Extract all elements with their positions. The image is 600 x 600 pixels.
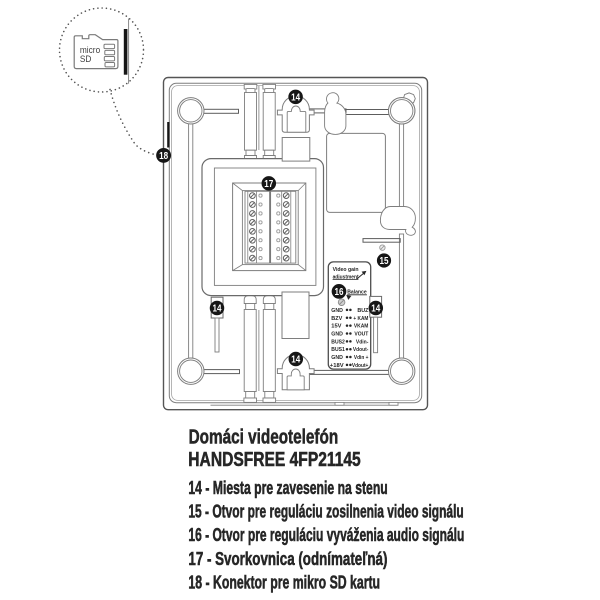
- svg-text:GND: GND: [331, 355, 343, 361]
- svg-text:BUS2: BUS2: [331, 339, 345, 345]
- svg-text:14: 14: [291, 92, 300, 103]
- svg-text:15: 15: [379, 255, 388, 266]
- svg-text:BUZ: BUZ: [357, 308, 369, 314]
- svg-text:BZV: BZV: [331, 316, 342, 322]
- svg-text:14: 14: [371, 303, 380, 314]
- svg-text:14: 14: [291, 354, 300, 365]
- svg-text:18: 18: [159, 150, 168, 161]
- svg-text:Video gain: Video gain: [333, 267, 359, 273]
- svg-text:Vdin-: Vdin-: [356, 339, 369, 345]
- svg-text:15V: 15V: [331, 324, 341, 330]
- svg-text:VOUT: VOUT: [354, 331, 369, 337]
- svg-text:14: 14: [212, 303, 221, 314]
- svg-text:15 - Otvor pre reguláciu zosil: 15 - Otvor pre reguláciu zosilnenia vide…: [188, 502, 463, 522]
- svg-text:BUS1: BUS1: [331, 347, 345, 353]
- svg-text:16 - Otvor pre reguláciu vyváž: 16 - Otvor pre reguláciu vyváženia audio…: [188, 526, 464, 546]
- svg-text:17 - Svorkovnica (odnímateľná): 17 - Svorkovnica (odnímateľná): [188, 550, 387, 569]
- svg-text:+18V: +18V: [330, 363, 344, 369]
- svg-text:VKAM: VKAM: [354, 324, 369, 330]
- svg-text:17: 17: [264, 178, 273, 189]
- svg-text:HANDSFREE 4FP21145: HANDSFREE 4FP21145: [188, 448, 360, 471]
- svg-text:Vdout-: Vdout-: [353, 347, 369, 353]
- svg-text:Vdin +: Vdin +: [354, 355, 369, 361]
- svg-text:GND: GND: [331, 308, 343, 314]
- svg-text:SD: SD: [80, 54, 92, 64]
- svg-text:Domáci videotelefón: Domáci videotelefón: [189, 425, 339, 448]
- svg-text:14 - Miesta pre zavesenie na s: 14 - Miesta pre zavesenie na stenu: [188, 479, 387, 499]
- svg-text:GND: GND: [331, 331, 343, 337]
- svg-text:Vdout+: Vdout+: [352, 363, 369, 369]
- svg-text:+ KAM: + KAM: [353, 316, 368, 322]
- svg-text:16: 16: [334, 286, 343, 297]
- svg-text:18 - Konektor pre mikro SD kar: 18 - Konektor pre mikro SD kartu: [188, 573, 380, 593]
